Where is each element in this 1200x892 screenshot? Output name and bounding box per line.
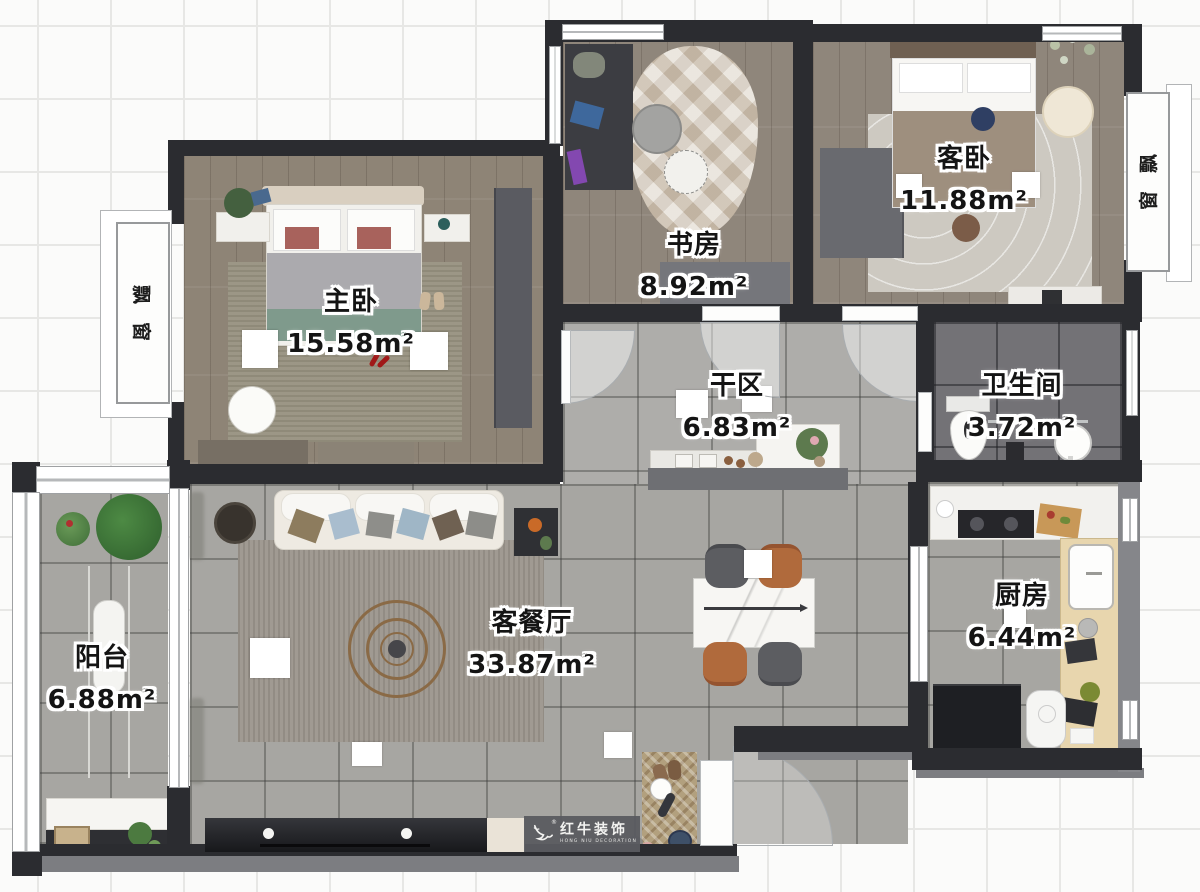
brand-watermark: ® 红牛装饰 HONG NIU DECORATION (524, 816, 640, 852)
room-name: 卫生间 (981, 373, 1062, 399)
room-name: 阳台 (75, 645, 129, 671)
pillow (899, 63, 963, 93)
room-area: 6.88m² (48, 687, 157, 713)
wall-segment (15, 856, 739, 872)
kitchen-east-window (1122, 498, 1138, 542)
keyboard (567, 149, 588, 185)
registered-mark: ® (551, 819, 557, 826)
bay-window-right-label: 飘 窗 (1138, 150, 1157, 214)
room-label-balcony: 阳台 6.88m² (48, 645, 157, 713)
room-label-dry-area: 干区 6.83m² (683, 373, 792, 441)
light-marker (250, 638, 290, 678)
throw-pillow (465, 511, 497, 539)
master-stool (228, 386, 276, 434)
room-label-bathroom: 卫生间 3.72m² (968, 373, 1077, 441)
vegetables (1080, 682, 1100, 702)
light-marker (744, 550, 772, 578)
light-marker (604, 732, 632, 758)
tv-slot (260, 844, 430, 847)
accent-pillow (285, 227, 319, 249)
kettle (1078, 618, 1098, 638)
sofa (274, 490, 504, 550)
teacup (736, 459, 745, 468)
wall-segment (168, 140, 560, 156)
room-area: 15.58m² (287, 331, 415, 357)
vanity-flower (810, 436, 819, 445)
balcony-north-window (36, 466, 170, 494)
fruit-bowl (528, 518, 542, 532)
bay-window-right: 飘 窗 (1126, 92, 1170, 272)
dry-area-half-wall (648, 468, 848, 490)
pillow (967, 63, 1031, 93)
guest-armchair (1042, 86, 1094, 138)
balcony-flower (66, 520, 73, 527)
balcony-plant-large (96, 494, 162, 560)
accent-pillow (357, 227, 391, 249)
ceiling-fan-center (388, 640, 406, 658)
bull-logo-icon: ® (532, 823, 554, 845)
balcony-west-window (12, 492, 40, 852)
room-name: 干区 (710, 373, 764, 399)
dining-chair-gray (705, 544, 749, 588)
wall-segment (167, 786, 190, 846)
curtain (190, 698, 204, 784)
room-label-master: 主卧 15.58m² (287, 289, 415, 357)
room-name: 客卧 (937, 146, 991, 172)
master-bed-headboard (262, 186, 424, 206)
fridge (933, 684, 1021, 748)
room-area: 6.83m² (683, 415, 792, 441)
light-marker (410, 332, 448, 370)
wall-segment (167, 460, 190, 490)
entry-door-leaf (700, 760, 733, 846)
plant (540, 536, 552, 550)
bathroom-door-leaf (918, 392, 932, 452)
entry-slipper (667, 759, 682, 780)
wall-segment (793, 20, 813, 322)
room-area: 8.92m² (640, 274, 749, 300)
burner (1004, 517, 1018, 531)
teacup (724, 456, 733, 465)
cutting-board (1036, 503, 1082, 539)
throw-pillow (396, 508, 430, 540)
room-name: 主卧 (324, 289, 378, 315)
kitchen-dish (936, 500, 954, 518)
wall-segment (1124, 24, 1142, 96)
burner (970, 517, 984, 531)
study-north-window (562, 24, 664, 40)
dining-chair-gray (758, 642, 802, 686)
throw-pillow (365, 511, 394, 538)
laptop (1042, 290, 1062, 305)
bay-window-left-label: 飘 窗 (133, 281, 152, 345)
dining-table (693, 578, 815, 648)
study-door-leaf (702, 306, 780, 321)
master-door-leaf (561, 330, 571, 404)
chandelier-arrow (800, 604, 808, 612)
master-wardrobe (494, 188, 532, 428)
faucet (1086, 572, 1102, 575)
kitchen-east-window-2 (1122, 700, 1138, 740)
square-side-table (514, 508, 558, 556)
guest-bed-headboard (890, 42, 1036, 58)
decor-dish (438, 218, 450, 230)
tv-console (205, 818, 487, 852)
wall-segment (916, 460, 1142, 482)
room-label-study: 书房 8.92m² (640, 232, 749, 300)
room-name: 客餐厅 (491, 610, 572, 636)
light-marker (242, 330, 278, 368)
room-area: 3.72m² (968, 415, 1077, 441)
room-name: 厨房 (995, 583, 1049, 609)
bay-window-left: 飘 窗 (116, 222, 170, 404)
sink (699, 454, 717, 468)
brand-name-cn: 红牛装饰 (560, 823, 637, 838)
wall-segment (912, 748, 1142, 770)
mouse-pad (570, 100, 605, 129)
study-west-window (549, 46, 561, 144)
sink (675, 454, 693, 468)
guest-door-leaf (842, 306, 918, 321)
desk-plant (573, 52, 605, 78)
round-pillow (971, 107, 995, 131)
paper-towel (1070, 728, 1094, 744)
slippers (433, 292, 444, 311)
wall-segment (543, 156, 563, 482)
stove (958, 510, 1034, 538)
wall-segment (734, 726, 920, 752)
guest-north-window (1042, 26, 1122, 41)
bathroom-window (1126, 330, 1138, 416)
speaker-box (487, 818, 525, 852)
curtain (190, 492, 204, 560)
room-name: 书房 (667, 232, 721, 258)
light-marker (352, 742, 382, 766)
speaker-dot (401, 828, 412, 839)
dining-chair-orange (703, 642, 747, 686)
room-area: 6.44m² (968, 625, 1077, 651)
master-bench (318, 442, 414, 466)
water-purifier (1026, 690, 1066, 748)
bath-cabinet (1006, 442, 1024, 462)
study-chair (632, 104, 682, 154)
wall-segment (168, 464, 560, 484)
kitchen-sliding-door (910, 546, 928, 682)
foot-cushion (952, 214, 980, 242)
brand-name-en: HONG NIU DECORATION (560, 840, 637, 845)
master-dresser (198, 440, 308, 466)
study-round-table (664, 150, 708, 194)
floor-plan: 飘 窗 飘 窗 (0, 0, 1200, 892)
wall-segment (12, 850, 42, 876)
room-area: 11.88m² (900, 188, 1028, 214)
chandelier-rod (704, 607, 804, 610)
balcony-glass-door (169, 488, 189, 788)
room-label-kitchen: 厨房 6.44m² (968, 583, 1077, 651)
vanity-vase (814, 456, 825, 467)
room-label-guest: 客卧 11.88m² (900, 146, 1028, 214)
speaker-dot (263, 828, 274, 839)
study-desk (565, 44, 633, 190)
room-area: 33.87m² (468, 652, 596, 678)
room-label-living-dining: 客餐厅 33.87m² (468, 610, 596, 678)
round-side-table (214, 502, 256, 544)
teapot (748, 452, 763, 467)
balcony-plant-small (56, 512, 90, 546)
